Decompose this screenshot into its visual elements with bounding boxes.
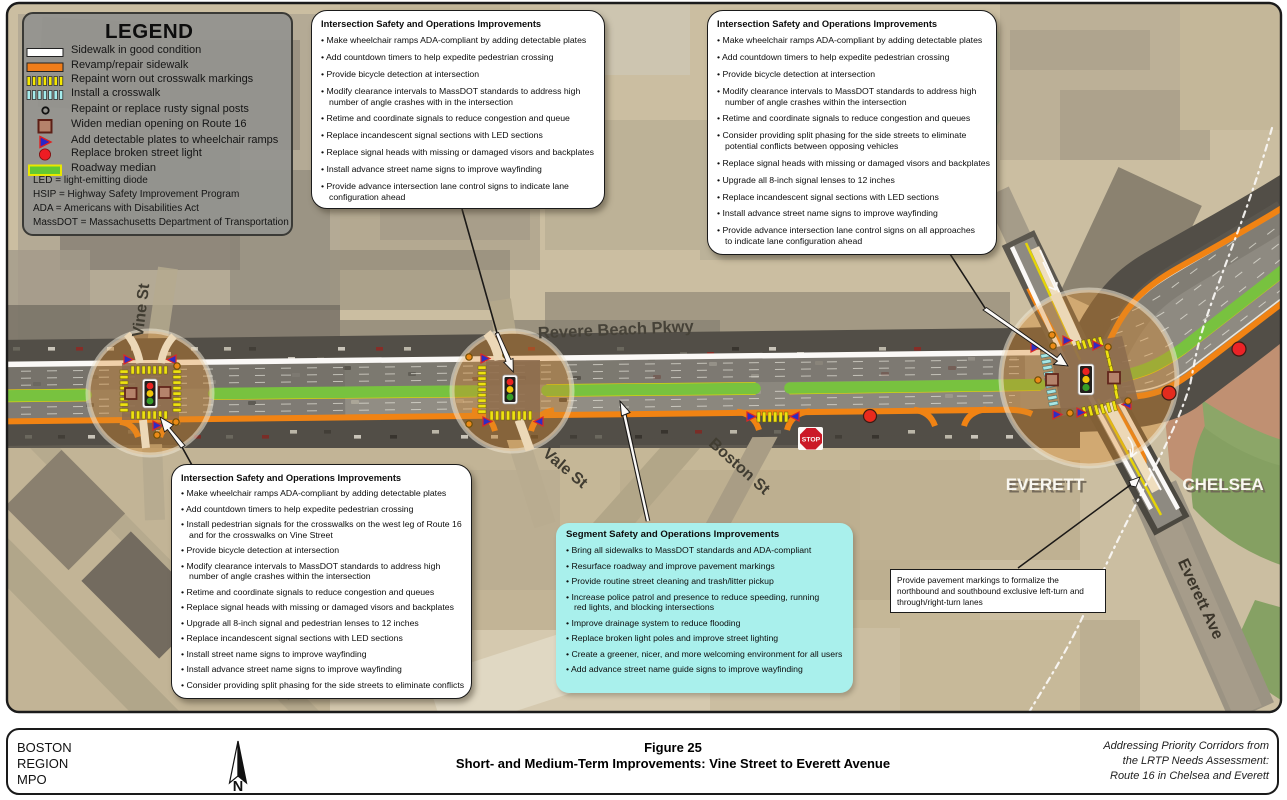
svg-text:N: N <box>233 779 243 795</box>
